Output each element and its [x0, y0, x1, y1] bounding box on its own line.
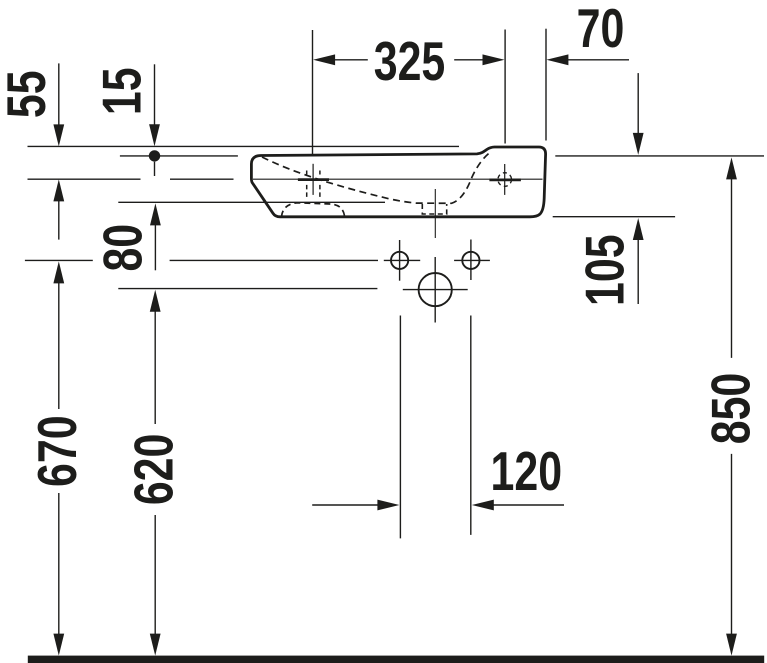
- svg-text:70: 70: [577, 0, 625, 59]
- svg-text:120: 120: [491, 441, 563, 502]
- svg-text:620: 620: [124, 434, 185, 506]
- svg-text:670: 670: [27, 415, 88, 487]
- svg-text:80: 80: [92, 224, 153, 272]
- svg-text:325: 325: [374, 31, 446, 92]
- svg-text:850: 850: [701, 373, 762, 445]
- svg-text:15: 15: [92, 67, 153, 115]
- svg-text:105: 105: [574, 234, 635, 306]
- svg-text:55: 55: [0, 70, 57, 118]
